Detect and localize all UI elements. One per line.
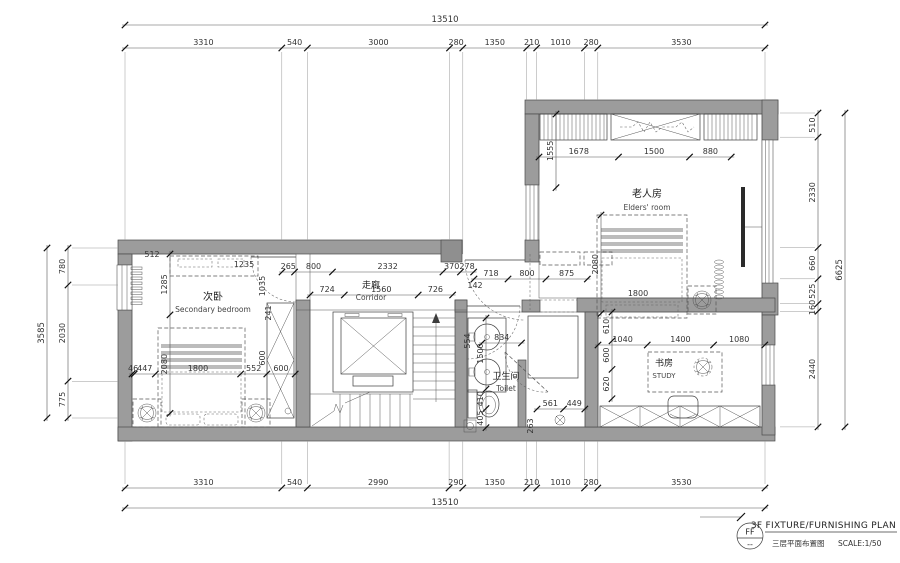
- dim-label: 265: [281, 262, 296, 271]
- stairs-south-flight: [310, 392, 413, 427]
- label-secondary-en: Secondary bedroom: [175, 305, 251, 314]
- dim-row: 561449: [534, 399, 588, 412]
- study-fan: [694, 358, 712, 376]
- dim-annotation: 263: [526, 418, 535, 433]
- dim-label: 3530: [671, 478, 691, 487]
- label-study-en: STUDY: [652, 372, 676, 380]
- dim-annotation: 1800: [628, 289, 648, 298]
- dim-row: 3585: [37, 245, 50, 421]
- titleblock-dash: --: [747, 540, 753, 549]
- label-study-zh: 书房: [655, 357, 673, 369]
- dim-annotation: 1035: [258, 276, 267, 296]
- dim-label: 449: [567, 399, 582, 408]
- label-toilet-zh: 卫生间: [492, 370, 519, 382]
- dim-label: 600: [273, 364, 288, 373]
- dim-label: 2332: [378, 262, 398, 271]
- study-window-cabinet: [600, 406, 760, 427]
- dim-label: 2440: [808, 359, 817, 379]
- dim-label: 3530: [671, 38, 691, 47]
- dim-label: 447: [137, 364, 152, 373]
- dim-label: 1350: [485, 38, 505, 47]
- dim-label: 1350: [485, 478, 505, 487]
- dim-annotation: 241: [264, 305, 273, 320]
- dim-label: 620: [602, 376, 611, 391]
- dim-label: 280: [584, 478, 599, 487]
- stair-core: [310, 312, 455, 427]
- elders-tv: [741, 187, 762, 267]
- dim-label: 210: [524, 38, 539, 47]
- dim-label: 405: [476, 410, 485, 425]
- dim-row: 6625: [835, 110, 848, 430]
- dim-label: 2990: [368, 478, 388, 487]
- dim-label: 540: [287, 478, 302, 487]
- dim-label: 2080: [591, 254, 600, 274]
- dim-label: 600: [602, 347, 611, 362]
- dim-label: 718: [483, 269, 498, 278]
- dim-label: 13510: [431, 15, 458, 25]
- dim-row: 13510: [122, 498, 768, 511]
- dim-label: 1555: [546, 141, 555, 161]
- floor-plan-svg: 1351033105403000280135021010102803530331…: [0, 0, 900, 563]
- dim-label: 880: [703, 147, 718, 156]
- dim-label: 2080: [160, 354, 169, 374]
- dim-label: 280: [584, 38, 599, 47]
- dim-label: 3310: [193, 38, 213, 47]
- dim-label: 800: [306, 262, 321, 271]
- dim-label: 1800: [188, 364, 208, 373]
- dim-label: 3585: [37, 322, 47, 344]
- dim-label: 410: [476, 391, 485, 406]
- dim-label: 3000: [368, 38, 388, 47]
- dim-row: 2658002332370278: [279, 262, 477, 275]
- dim-row: 718800875: [471, 269, 591, 282]
- dim-annotation: 1235: [234, 260, 254, 269]
- label-corridor-en: Corridor: [356, 293, 387, 302]
- dim-label: 2330: [808, 182, 817, 202]
- dim-label: 724: [320, 285, 335, 294]
- dim-row: 51023306605251602440: [808, 110, 821, 430]
- title-block: FF -- 3F FIXTURE/FURNISHING PLAN 三层平面布置图…: [700, 513, 897, 549]
- label-elders-zh: 老人房: [632, 187, 662, 200]
- dim-annotation: 142: [467, 281, 482, 290]
- dim-label: 1040: [612, 335, 632, 344]
- titleblock-title-zh: 三层平面布置图: [772, 538, 825, 548]
- elders-radiator: [715, 260, 724, 299]
- dim-annotation: 600: [258, 350, 267, 365]
- label-toilet-en: Toilet: [495, 384, 516, 393]
- elevator: [333, 312, 413, 392]
- dim-label: 875: [559, 269, 574, 278]
- closet-louver-right: [704, 114, 757, 140]
- dim-label: 1500: [476, 343, 485, 363]
- study-furniture: [600, 352, 760, 427]
- dim-row: 16781500880: [536, 147, 735, 160]
- dim-row: 104014001080: [595, 335, 768, 348]
- shower-area: [505, 316, 578, 425]
- window-elders-west: [526, 185, 538, 240]
- dim-label: 525: [808, 284, 817, 299]
- titleblock-title-en: 3F FIXTURE/FURNISHING PLAN: [751, 521, 896, 531]
- dim-label: 3310: [193, 478, 213, 487]
- dim-label: 13510: [431, 498, 458, 508]
- dim-row: 7802030775: [58, 245, 71, 421]
- dim-label: 540: [287, 38, 302, 47]
- study-chair: [668, 396, 698, 418]
- dim-label: 278: [459, 262, 474, 271]
- window-elders-east: [762, 140, 773, 283]
- dim-label: 1080: [729, 335, 749, 344]
- dim-label: 780: [58, 259, 67, 274]
- label-secondary-zh: 次卧: [203, 290, 223, 303]
- titleblock-scale: SCALE:1/50: [838, 539, 882, 548]
- elders-room-furniture: [465, 114, 762, 320]
- bedroom-radiator: [131, 267, 142, 305]
- closet-louver-left: [540, 114, 607, 140]
- dim-label: 1400: [670, 335, 690, 344]
- dim-label: 726: [428, 285, 443, 294]
- closet-x-cabinet: [611, 114, 700, 140]
- dim-label: 280: [448, 38, 463, 47]
- bedroom-nightstand-fan-right: [242, 399, 270, 427]
- dim-label: 1285: [160, 274, 169, 294]
- dim-annotation: 512: [144, 250, 159, 259]
- dim-label: 210: [524, 478, 539, 487]
- dim-label: 1500: [644, 147, 664, 156]
- dim-label: 1010: [550, 38, 570, 47]
- stairs-east-flight: [413, 313, 455, 402]
- dim-label: 800: [519, 269, 534, 278]
- dim-label: 660: [808, 256, 817, 271]
- dim-row: 33105402990290135021010102803530: [122, 478, 768, 491]
- bedroom-nightstand-fan-left: [133, 399, 161, 427]
- dim-label: 6625: [835, 259, 845, 281]
- dim-label: 561: [543, 399, 558, 408]
- shower-drain: [555, 415, 565, 425]
- dim-label: 1010: [550, 478, 570, 487]
- floor-plan-page: 1351033105403000280135021010102803530331…: [0, 0, 900, 563]
- dim-label: 610: [602, 319, 611, 334]
- dim-annotation: 554: [463, 333, 472, 348]
- dim-label: 1678: [569, 147, 589, 156]
- dim-label: 290: [448, 478, 463, 487]
- dim-row: 610600620: [602, 309, 615, 402]
- dim-label: 2030: [58, 323, 67, 343]
- dim-row: 13510: [122, 15, 768, 28]
- secondary-bedroom-furniture: [131, 256, 296, 427]
- dim-label: 370: [444, 262, 459, 271]
- dim-label: 775: [58, 392, 67, 407]
- label-corridor-zh: 走廊: [362, 279, 380, 291]
- dim-label: 834: [494, 333, 509, 342]
- label-elders-en: Elders' room: [623, 203, 670, 212]
- window-bedroom-west: [117, 265, 132, 310]
- dim-label: 510: [808, 117, 817, 132]
- dim-row: 33105403000280135021010102803530: [122, 38, 768, 51]
- window-study-east: [762, 345, 774, 385]
